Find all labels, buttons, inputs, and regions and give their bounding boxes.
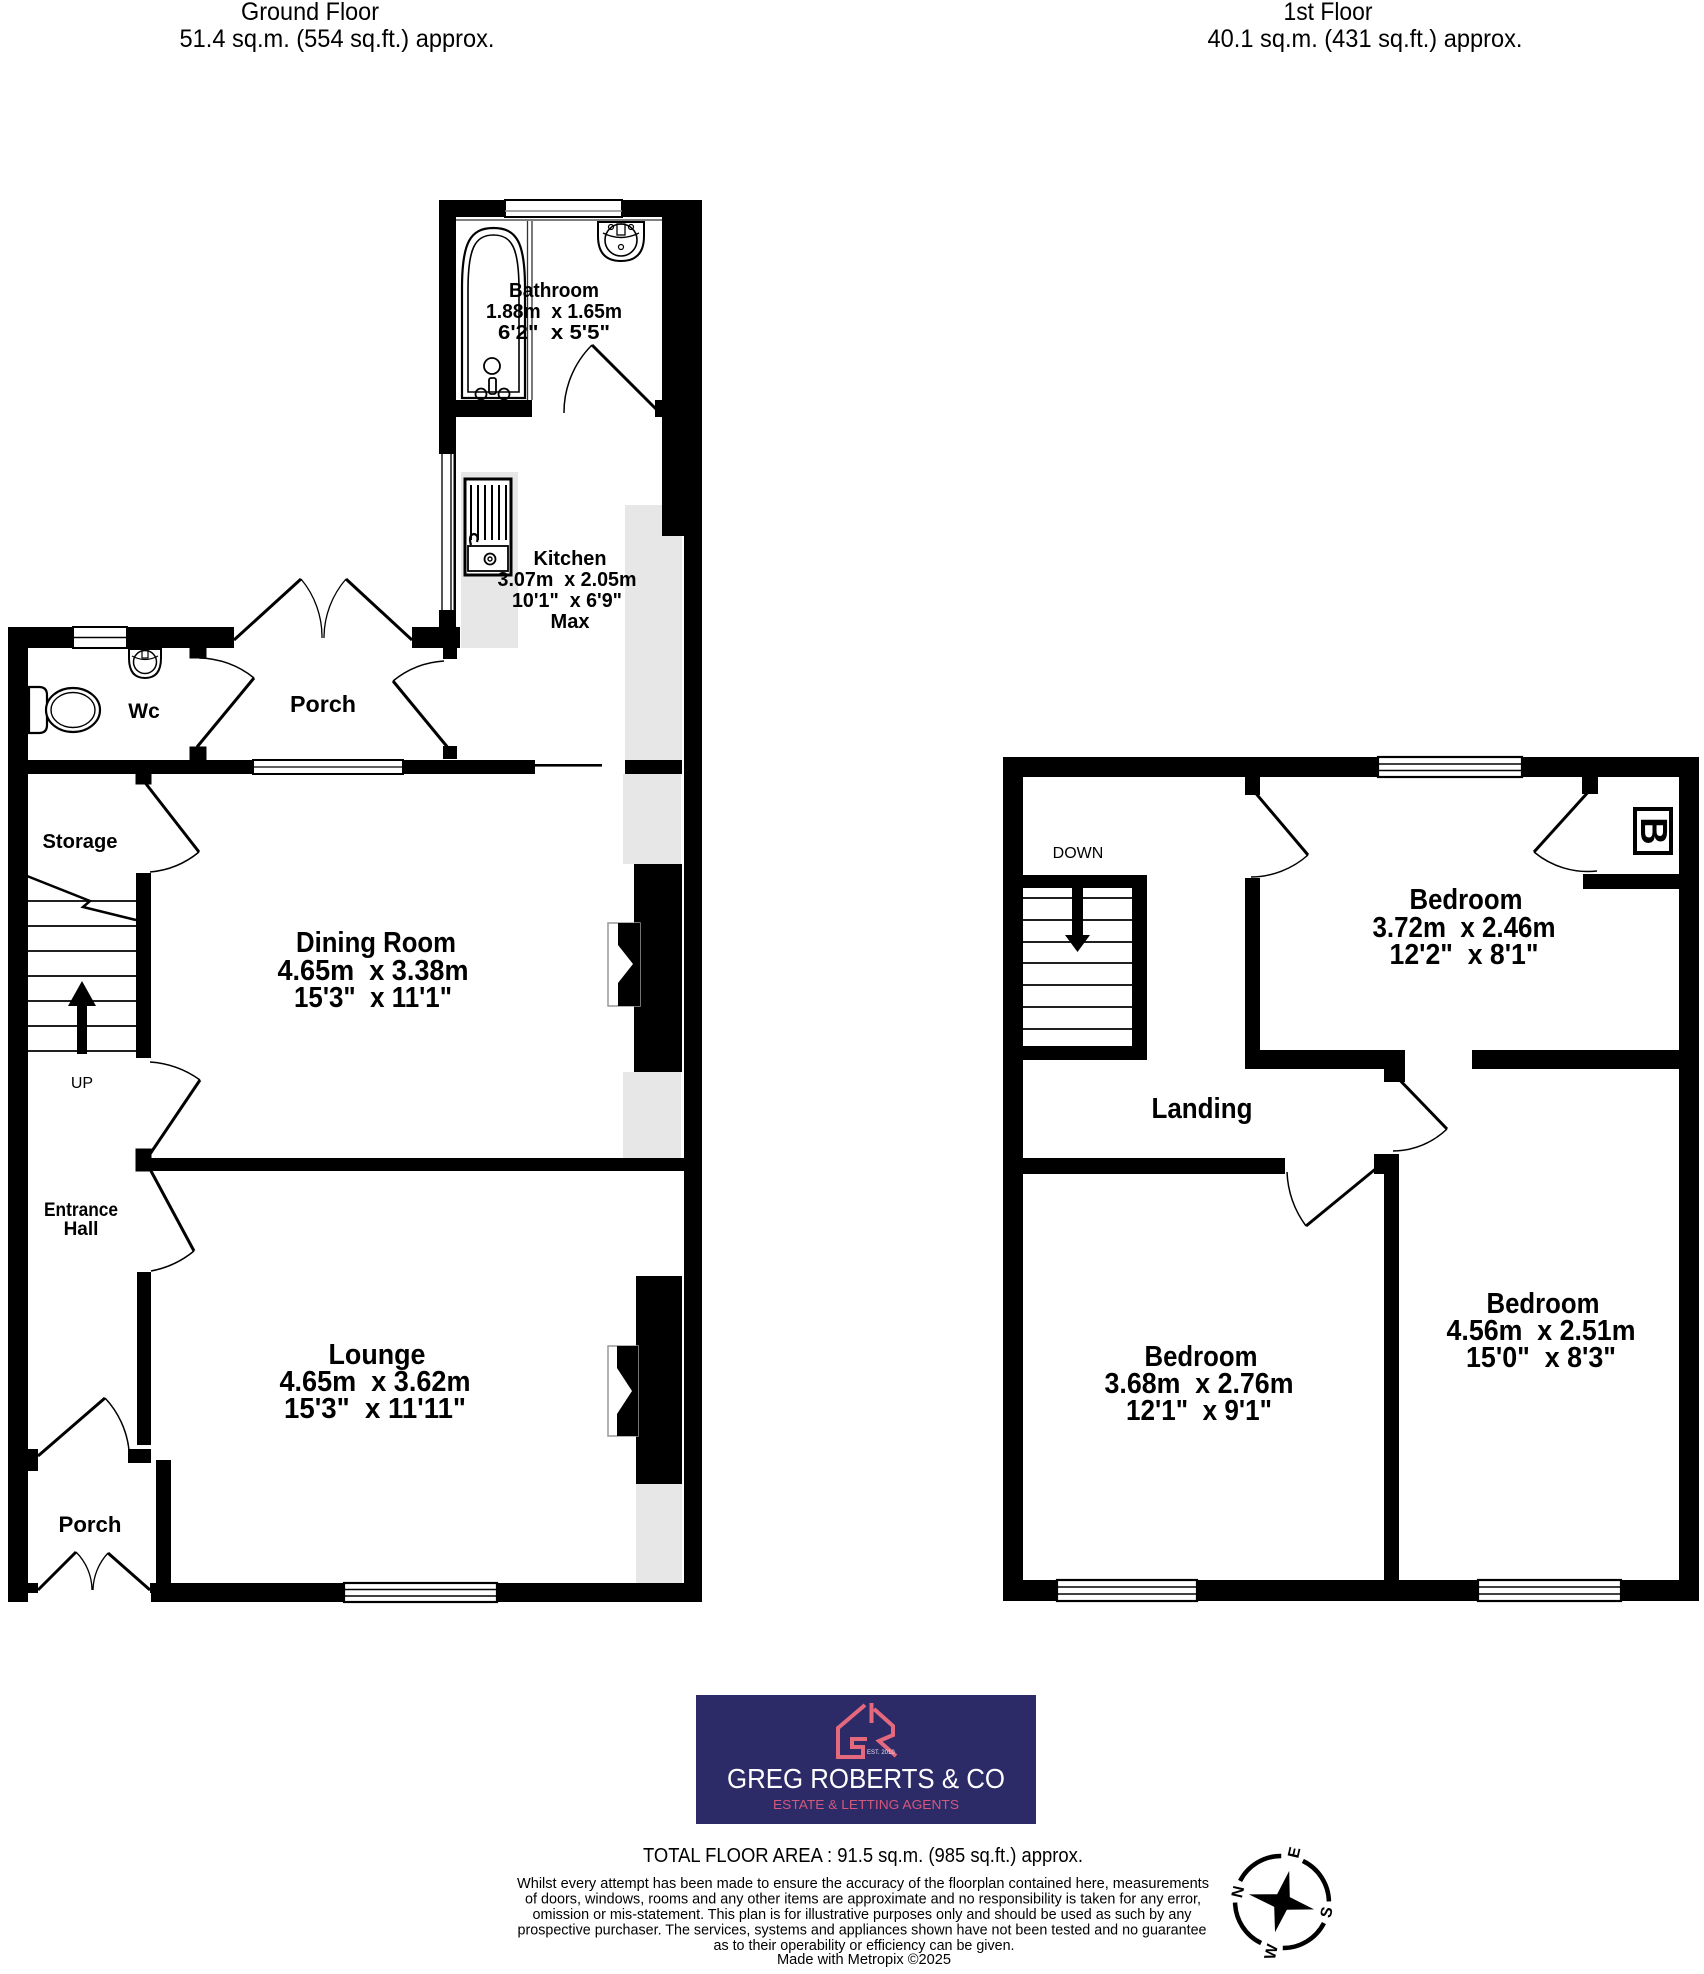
svg-text:prospective purchaser. The ser: prospective purchaser. The services, sys… (518, 1922, 1207, 1939)
svg-text:15'3" x 11'11": 15'3" x 11'11" (284, 1393, 466, 1425)
svg-text:Porch: Porch (59, 1512, 122, 1537)
svg-text:Hall: Hall (64, 1219, 99, 1240)
svg-text:Ground Floor: Ground Floor (241, 0, 379, 26)
svg-text:15'0" x 8'3": 15'0" x 8'3" (1466, 1342, 1616, 1374)
svg-text:Landing: Landing (1152, 1093, 1253, 1125)
svg-text:Whilst every attempt has been: Whilst every attempt has been made to en… (517, 1875, 1209, 1892)
svg-text:of doors, windows, rooms and a: of doors, windows, rooms and any other i… (525, 1891, 1201, 1908)
svg-text:Storage: Storage (43, 831, 118, 853)
svg-text:omission or mis-statement. Thi: omission or mis-statement. This plan is … (533, 1906, 1192, 1923)
svg-text:10'1" x 6'9": 10'1" x 6'9" (512, 590, 622, 612)
svg-text:51.4 sq.m. (554 sq.ft.) approx: 51.4 sq.m. (554 sq.ft.) approx. (180, 25, 495, 53)
svg-text:Max: Max (551, 611, 590, 633)
svg-text:15'3" x 11'1": 15'3" x 11'1" (294, 982, 452, 1014)
svg-text:3.07m x 2.05m: 3.07m x 2.05m (498, 569, 637, 591)
svg-text:ESTATE & LETTING AGENTS: ESTATE & LETTING AGENTS (773, 1797, 959, 1812)
svg-text:Kitchen: Kitchen (534, 548, 607, 570)
svg-text:Porch: Porch (290, 691, 356, 717)
svg-text:UP: UP (71, 1075, 93, 1092)
svg-text:40.1 sq.m. (431 sq.ft.) approx: 40.1 sq.m. (431 sq.ft.) approx. (1208, 25, 1523, 53)
svg-text:1.88m x 1.65m: 1.88m x 1.65m (486, 301, 622, 323)
svg-text:B: B (1632, 817, 1674, 844)
svg-text:12'2" x 8'1": 12'2" x 8'1" (1390, 939, 1539, 971)
svg-text:EST. 2010: EST. 2010 (867, 1750, 895, 1756)
svg-text:12'1" x 9'1": 12'1" x 9'1" (1126, 1395, 1272, 1427)
svg-text:GREG ROBERTS & CO: GREG ROBERTS & CO (727, 1763, 1005, 1794)
svg-text:Entrance: Entrance (44, 1200, 118, 1221)
svg-text:DOWN: DOWN (1053, 845, 1104, 862)
svg-text:TOTAL FLOOR AREA : 91.5 sq.m.: TOTAL FLOOR AREA : 91.5 sq.m. (985 sq.ft… (643, 1845, 1083, 1867)
svg-text:Wc: Wc (128, 700, 160, 723)
svg-text:Made with Metropix ©2025: Made with Metropix ©2025 (777, 1951, 951, 1968)
svg-text:Bathroom: Bathroom (509, 280, 599, 302)
svg-text:6'2" x 5'5": 6'2" x 5'5" (498, 322, 610, 344)
svg-text:1st Floor: 1st Floor (1284, 0, 1373, 26)
